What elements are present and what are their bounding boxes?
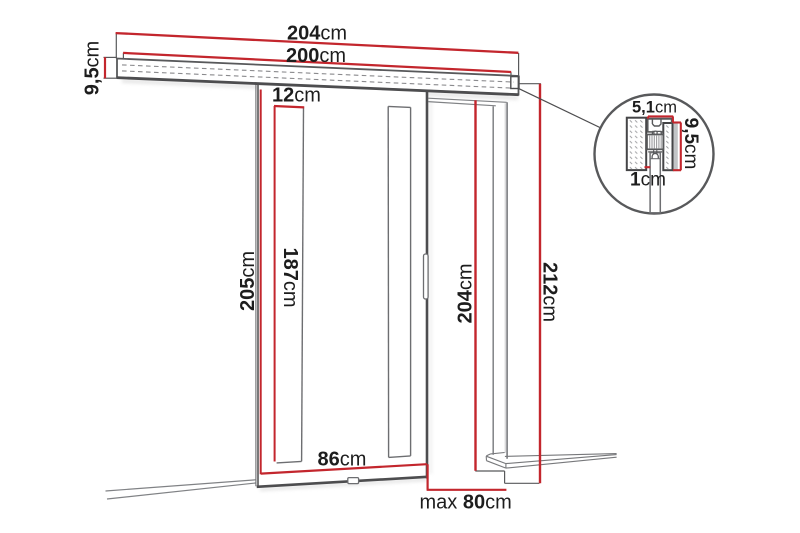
svg-text:9,5cm: 9,5cm [82, 41, 104, 95]
svg-text:max 80cm: max 80cm [420, 492, 512, 514]
svg-text:212cm: 212cm [539, 262, 561, 322]
svg-text:12cm: 12cm [272, 85, 321, 107]
svg-text:187cm: 187cm [279, 247, 301, 307]
svg-text:5,1cm: 5,1cm [632, 98, 677, 116]
svg-text:204cm: 204cm [455, 263, 477, 323]
svg-text:204cm: 204cm [287, 23, 347, 45]
svg-text:205cm: 205cm [237, 251, 259, 311]
svg-text:86cm: 86cm [318, 449, 367, 471]
svg-text:200cm: 200cm [286, 45, 346, 67]
svg-text:9,5cm: 9,5cm [680, 118, 701, 170]
svg-text:1cm: 1cm [630, 170, 666, 191]
